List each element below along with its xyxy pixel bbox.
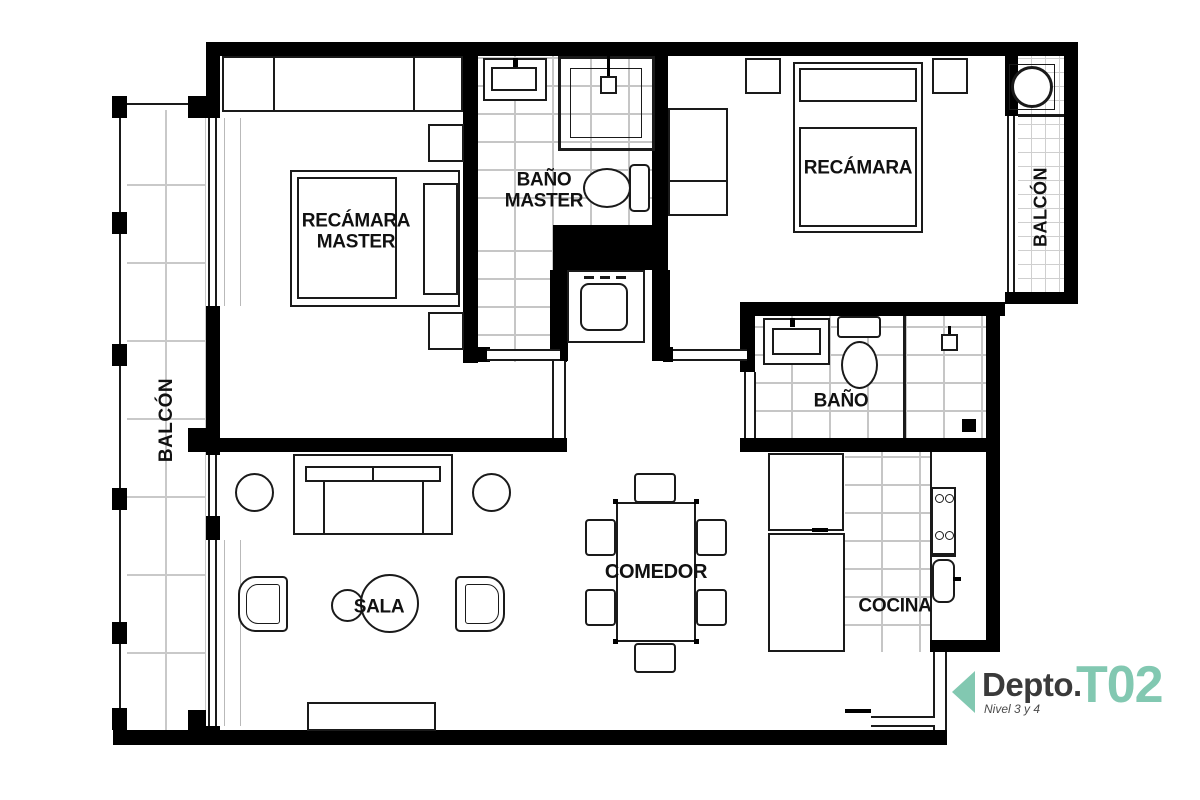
shower-head: [600, 76, 617, 94]
dining-chair: [696, 589, 727, 626]
wall-bath-right: [986, 304, 1000, 438]
wall-window-pier: [206, 516, 220, 540]
dining-chair: [585, 589, 616, 626]
wall-bath-south: [740, 438, 1000, 452]
dining-chair: [634, 473, 676, 503]
toilet-master-bowl: [583, 168, 631, 208]
entry-door-leaf: [871, 716, 935, 727]
room-label-bano: BAÑO: [814, 390, 869, 411]
shower-head: [941, 334, 958, 351]
window-sill-line: [224, 540, 225, 726]
table-corner: [694, 499, 699, 504]
wall-bottom: [113, 730, 947, 745]
room-label-sala: SALA: [354, 596, 405, 617]
bed-pillow: [799, 68, 917, 102]
railing-post: [112, 212, 127, 234]
wall-right-upper: [1064, 56, 1078, 304]
shower-drain: [962, 419, 976, 432]
window-master-balcony: [206, 118, 220, 306]
kitchen-cabinet: [768, 533, 845, 652]
badge-unit: T02: [1076, 655, 1163, 715]
wall-junction-block: [188, 710, 206, 732]
wall-bedroom-south: [747, 302, 1005, 316]
wall-balcony-right-bottom: [1005, 292, 1078, 304]
wall-sala-north: [206, 438, 567, 452]
wall-top: [206, 42, 1078, 56]
counter-divider: [930, 555, 956, 557]
toilet-master-tank: [629, 164, 650, 212]
railing-post: [112, 96, 127, 118]
faucet: [790, 318, 795, 327]
wall-left-mid: [206, 306, 220, 455]
armchair: [455, 576, 505, 632]
wall-kitchen-right: [986, 438, 1000, 652]
window-sill-line: [240, 540, 241, 726]
tv-console: [307, 702, 436, 731]
sofa: [293, 454, 453, 535]
railing-post: [112, 344, 127, 366]
side-table: [235, 473, 274, 512]
washing-machine: [567, 270, 645, 343]
shower-head-stem: [607, 56, 610, 76]
wardrobe-master: [222, 56, 463, 112]
boiler: [1011, 66, 1053, 108]
room-label-balcon-right: BALCÓN: [1031, 167, 1052, 247]
badge-arrow-icon: [952, 671, 975, 713]
room-label-recamara: RECÁMARA: [804, 157, 912, 178]
dining-chair: [585, 519, 616, 556]
nightstand: [428, 124, 464, 162]
room-label-recamara-master: RECÁMARA MASTER: [302, 211, 410, 254]
wall-left-pier: [206, 56, 220, 118]
wall-master-bath: [463, 56, 478, 363]
stove: [931, 487, 956, 555]
door-hinge-block: [747, 347, 755, 362]
refrigerator: [768, 453, 844, 531]
railing-post: [112, 488, 127, 510]
railing-post: [112, 622, 127, 644]
bathroom-master-floor-lower: [478, 225, 553, 362]
window-sill-line: [224, 118, 225, 306]
boiler-niche-divider: [1018, 114, 1064, 117]
sliding-door-bath: [744, 372, 756, 438]
sliding-door-master-bedroom: [552, 361, 566, 438]
toilet-bowl: [841, 341, 878, 389]
wall-left-bottom: [206, 726, 220, 738]
wall-kitchen-bottom: [930, 638, 1000, 652]
nightstand: [932, 58, 968, 94]
window-sala-balcony: [206, 455, 220, 726]
faucet: [513, 58, 518, 67]
table-corner: [613, 639, 618, 644]
nightstand: [745, 58, 781, 94]
wall-hall-block: [553, 225, 668, 270]
badge-prefix: Depto.: [982, 666, 1082, 704]
bed-master-pillow: [423, 183, 458, 295]
wardrobe: [668, 108, 728, 216]
dining-chair: [696, 519, 727, 556]
wall-junction-block: [188, 428, 206, 452]
nightstand: [428, 312, 464, 350]
room-label-cocina: COCINA: [858, 595, 931, 616]
entry-door-jamb: [933, 652, 947, 730]
kitchen-sink: [932, 559, 955, 603]
entry-door-handle: [845, 709, 871, 713]
shower-partition: [903, 316, 906, 438]
sliding-door-bath-master: [487, 349, 560, 361]
room-label-comedor: COMEDOR: [605, 561, 707, 583]
floor-plan: RECÁMARA MASTER BAÑO MASTER RECÁMARA BAL…: [0, 0, 1200, 800]
window-sill-line: [240, 118, 241, 306]
window-bedroom-balcony: [1005, 116, 1018, 292]
table-corner: [694, 639, 699, 644]
room-label-bano-master: BAÑO MASTER: [505, 170, 583, 213]
kitchen-floor: [845, 452, 930, 652]
wall-junction-block: [188, 96, 206, 118]
fridge-handle: [812, 528, 828, 532]
door-hinge-block: [663, 347, 673, 362]
armchair: [238, 576, 288, 632]
toilet-tank: [837, 316, 881, 338]
side-table: [472, 473, 511, 512]
kitchen-faucet: [953, 577, 961, 581]
room-label-balcon-left: BALCÓN: [156, 378, 178, 462]
sink: [763, 318, 830, 365]
railing-post: [112, 708, 127, 730]
sliding-door-bedroom: [673, 349, 747, 361]
badge-subtitle: Nivel 3 y 4: [984, 702, 1040, 716]
dining-chair: [634, 643, 676, 673]
table-corner: [613, 499, 618, 504]
